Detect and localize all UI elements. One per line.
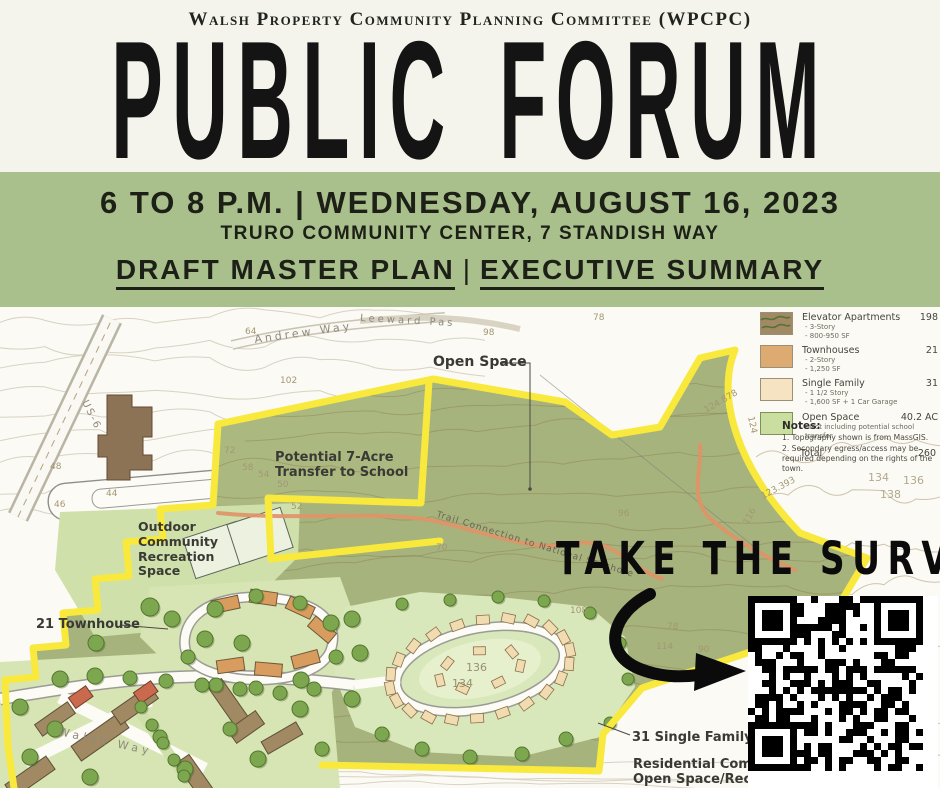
qr-code-pattern bbox=[748, 596, 923, 771]
flyer-page: Walsh Property Community Planning Commit… bbox=[0, 0, 940, 788]
svg-text:64: 64 bbox=[245, 327, 257, 337]
svg-text:54: 54 bbox=[258, 470, 270, 480]
site-plan-map: Andrew Way Leeward Pas US-6 Walsh Way 64… bbox=[0, 307, 940, 788]
subject-part2: EXECUTIVE SUMMARY bbox=[480, 254, 824, 290]
svg-text:102: 102 bbox=[280, 376, 297, 386]
single-family-label: 31 Single Family bbox=[632, 730, 753, 745]
map-notes: Notes: 1. Topography shown is from MassG… bbox=[782, 420, 934, 474]
event-location: TRURO COMMUNITY CENTER, 7 STANDISH WAY bbox=[0, 223, 940, 245]
svg-text:78: 78 bbox=[667, 622, 679, 632]
svg-text:136: 136 bbox=[903, 474, 924, 487]
school-parcel-label: Potential 7-Acre Transfer to School bbox=[275, 450, 408, 481]
svg-text:98: 98 bbox=[483, 328, 495, 338]
legend-row-townhouses: Townhouses21 - 2-Story - 1,250 SF bbox=[760, 345, 938, 374]
subject-part1: DRAFT MASTER PLAN bbox=[116, 254, 455, 290]
svg-text:52: 52 bbox=[291, 502, 302, 512]
svg-text:72: 72 bbox=[224, 446, 235, 456]
svg-text:46: 46 bbox=[54, 500, 66, 510]
svg-text:138: 138 bbox=[880, 488, 901, 501]
open-space-label: Open Space bbox=[433, 354, 527, 371]
svg-text:96: 96 bbox=[618, 509, 630, 519]
qr-code bbox=[748, 596, 938, 788]
svg-text:114: 114 bbox=[656, 642, 673, 652]
svg-text:134: 134 bbox=[452, 677, 473, 690]
svg-text:108: 108 bbox=[570, 606, 587, 616]
svg-text:78: 78 bbox=[593, 313, 605, 323]
recreation-label: Outdoor Community Recreation Space bbox=[138, 520, 218, 579]
townhouses-swatch bbox=[760, 345, 793, 368]
svg-text:70: 70 bbox=[436, 543, 448, 553]
header: Walsh Property Community Planning Commit… bbox=[0, 0, 940, 172]
take-survey-cta: TAKE THE SURVEY bbox=[556, 532, 884, 585]
legend-row-single-family: Single Family31 - 1 1/2 Story - 1,600 SF… bbox=[760, 378, 938, 407]
svg-text:58: 58 bbox=[242, 463, 254, 473]
event-subject: DRAFT MASTER PLAN|EXECUTIVE SUMMARY bbox=[0, 254, 940, 286]
svg-text:136: 136 bbox=[466, 661, 487, 674]
svg-text:44: 44 bbox=[106, 489, 118, 499]
svg-text:90: 90 bbox=[698, 645, 710, 655]
page-title: PUBLIC FORUM bbox=[0, 25, 940, 165]
svg-text:48: 48 bbox=[50, 462, 62, 472]
subject-divider: | bbox=[455, 254, 480, 285]
svg-text:50: 50 bbox=[277, 480, 289, 490]
single-family-swatch bbox=[760, 378, 793, 401]
townhouse-label: 21 Townhouse bbox=[36, 617, 140, 632]
